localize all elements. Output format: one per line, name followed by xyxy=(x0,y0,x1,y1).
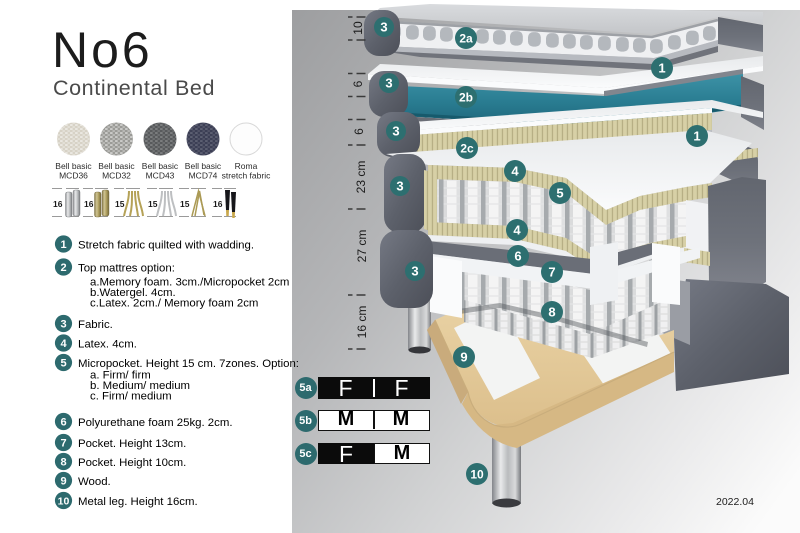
svg-text:10: 10 xyxy=(470,468,484,482)
svg-text:2a: 2a xyxy=(459,32,473,46)
svg-text:7: 7 xyxy=(548,265,555,280)
svg-text:1: 1 xyxy=(693,129,700,144)
svg-text:3: 3 xyxy=(411,264,418,279)
svg-text:3: 3 xyxy=(385,76,392,91)
svg-text:23 cm: 23 cm xyxy=(354,161,368,194)
svg-text:2c: 2c xyxy=(460,142,474,156)
svg-text:2b: 2b xyxy=(459,91,473,105)
svg-text:9: 9 xyxy=(460,350,467,365)
svg-text:4: 4 xyxy=(511,164,519,179)
svg-text:6: 6 xyxy=(352,128,366,135)
svg-text:4: 4 xyxy=(513,223,521,238)
svg-text:10: 10 xyxy=(351,21,365,35)
svg-text:3: 3 xyxy=(380,20,387,35)
svg-text:3: 3 xyxy=(396,179,403,194)
svg-text:8: 8 xyxy=(548,305,555,320)
svg-text:6: 6 xyxy=(351,80,365,87)
svg-text:3: 3 xyxy=(392,124,399,139)
svg-text:5: 5 xyxy=(556,186,563,201)
svg-text:1: 1 xyxy=(658,61,665,76)
svg-text:27 cm: 27 cm xyxy=(355,230,369,263)
svg-text:16 cm: 16 cm xyxy=(355,306,369,339)
svg-text:6: 6 xyxy=(514,249,521,264)
